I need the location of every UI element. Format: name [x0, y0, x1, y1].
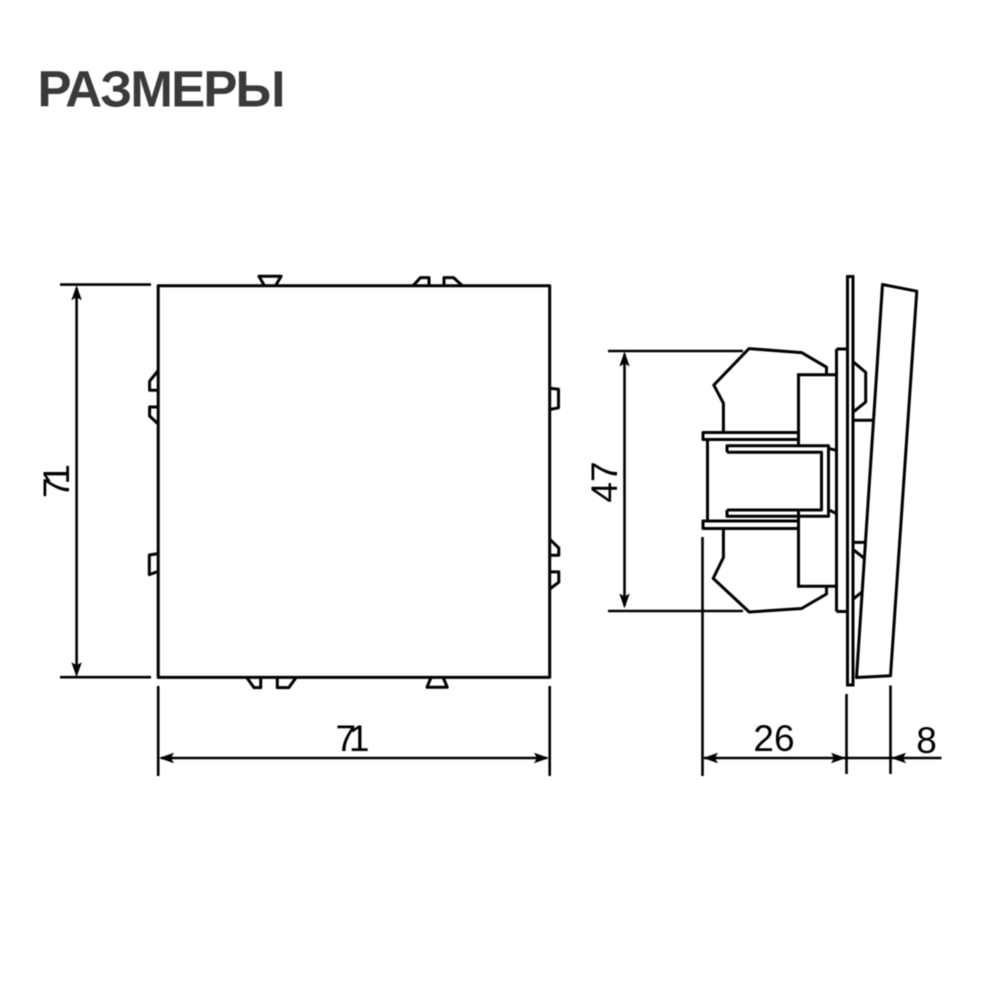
svg-text:8: 8	[916, 720, 937, 761]
svg-text:71: 71	[36, 464, 77, 498]
svg-text:26: 26	[753, 718, 794, 759]
svg-text:71: 71	[336, 718, 370, 759]
svg-text:РАЗМЕРЫ: РАЗМЕРЫ	[38, 61, 284, 118]
svg-text:47: 47	[584, 461, 625, 502]
